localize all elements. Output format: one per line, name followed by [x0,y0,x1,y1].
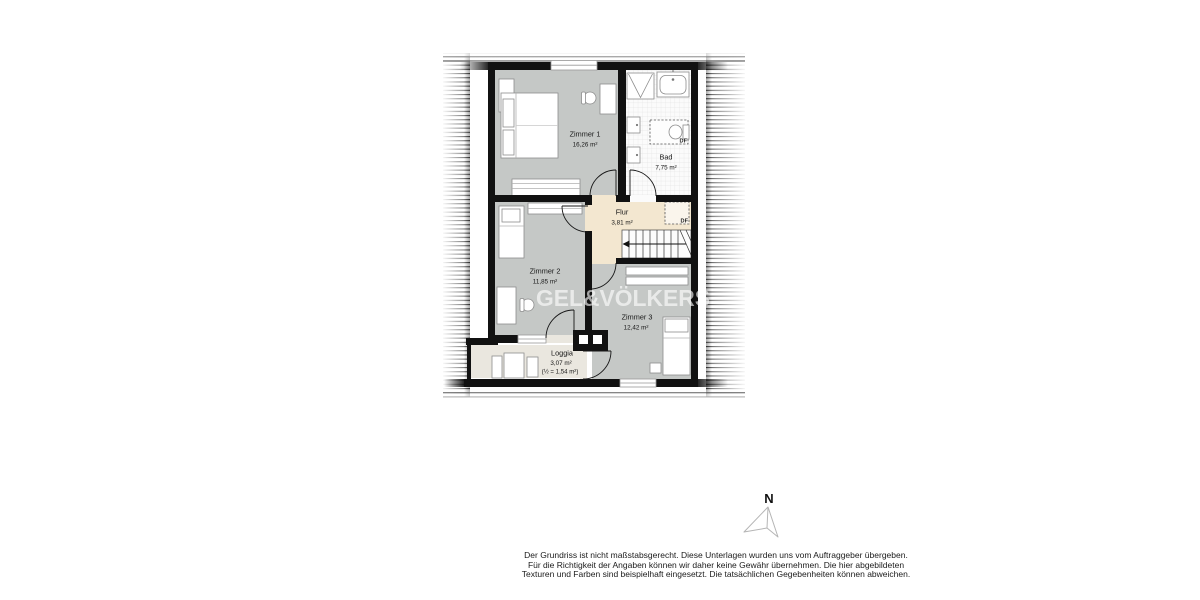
window-top [551,61,597,71]
bad-area: 7,75 m² [655,165,676,172]
desk [600,84,616,114]
flur-name: Flur [616,208,629,217]
zimmer1-name: Zimmer 1 [570,130,601,139]
zimmer3-area: 12,42 m² [624,325,649,332]
floor-plan-svg: Zimmer 1 16,26 m² Bad 7,75 m² Flur 3,81 … [440,52,750,402]
shelf [626,267,688,275]
toilet-bowl [669,125,682,139]
zimmer3-name: Zimmer 3 [622,313,653,322]
pillow [503,99,514,127]
shelf [626,277,688,285]
window-zimmer2-loggia [518,335,546,343]
zimmer1-area: 16,26 m² [573,142,598,149]
pillow [665,319,688,332]
zimmer2-name: Zimmer 2 [530,267,561,276]
chair [527,357,538,377]
flur-df-label: DF [681,219,689,225]
chair [492,356,502,378]
bad-name: Bad [660,153,673,162]
shower [627,73,654,99]
disclaimer-line: Texturen und Farben sind beispielhaft ei… [416,570,1016,580]
toilet-tank [683,125,689,139]
chair-back [582,92,586,104]
pillow [502,209,520,222]
side-table [650,363,661,373]
compass-svg: N [740,485,790,547]
loggia-area: 3,07 m² [550,360,571,367]
disclaimer: Der Grundriss ist nicht maßstabsgerecht.… [416,551,1016,580]
staircase [622,230,691,258]
table [504,353,524,378]
loggia-furniture [492,353,538,378]
north-label: N [764,491,773,506]
floor-plan: Zimmer 1 16,26 m² Bad 7,75 m² Flur 3,81 … [440,52,750,402]
pillow [503,130,514,155]
roof-hatch-right [706,53,745,397]
chimney [573,330,608,351]
chair-back [520,299,524,312]
sideboard [512,179,580,196]
compass: N [740,485,796,549]
desk [497,287,516,324]
window-bottom [620,379,656,387]
bad-df-label: DF [680,139,688,145]
roof-hatch-left [443,53,470,397]
page: { "floor_plan": { "watermark": "GEL&VÖLK… [0,0,1200,600]
north-arrow-icon [744,507,778,537]
loggia-name: Loggia [551,349,574,358]
roof-hatch-bottom [443,390,745,400]
flur-area: 3,81 m² [611,220,632,227]
watermark: GEL&VÖLKERS [536,285,710,311]
loggia-area-note: (½ = 1,54 m²) [542,369,579,376]
